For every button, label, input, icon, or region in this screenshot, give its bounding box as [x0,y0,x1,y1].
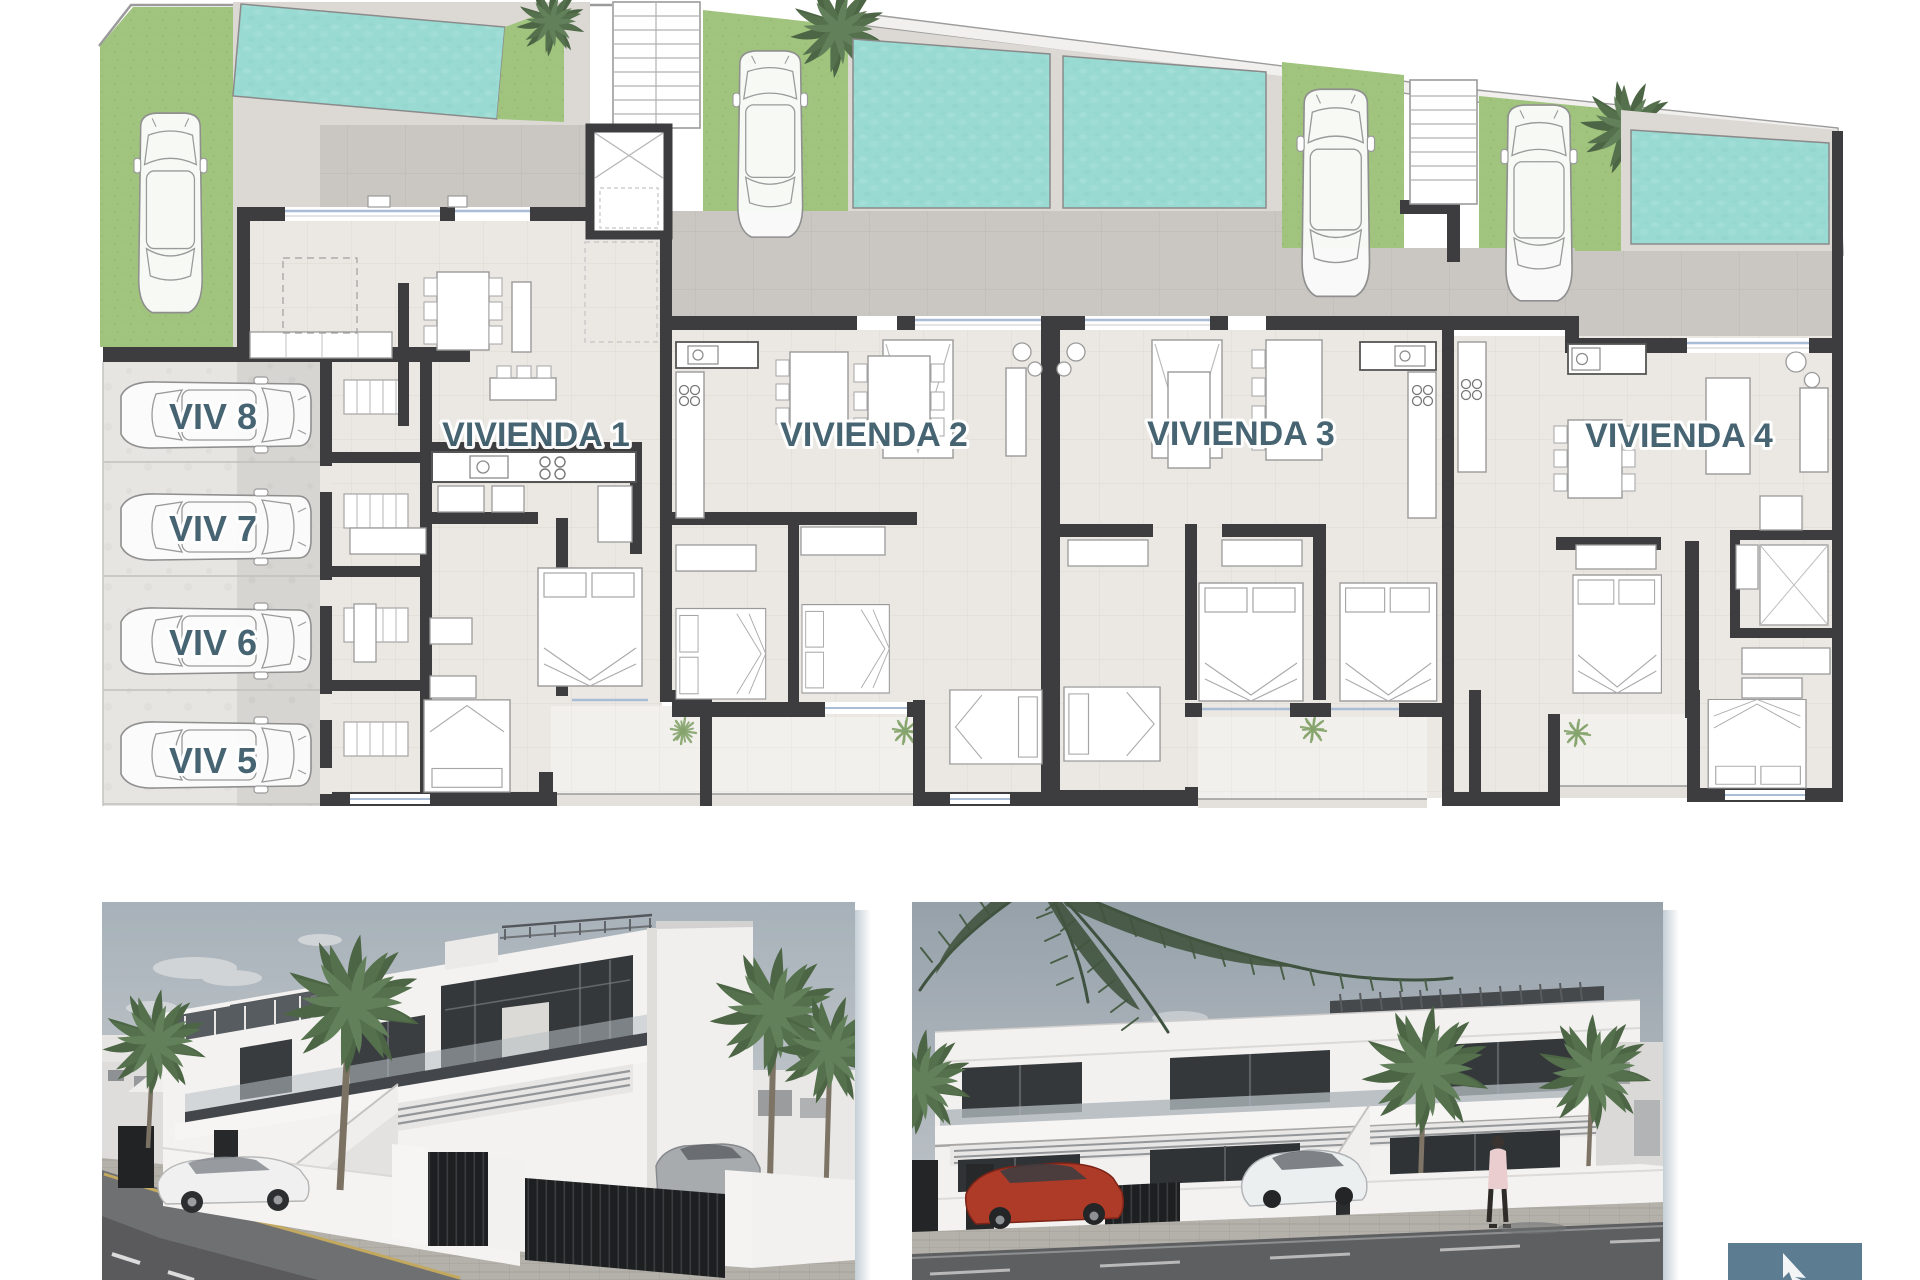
svg-text:VIVIENDA 2: VIVIENDA 2 [780,416,968,454]
svg-text:VIV 5: VIV 5 [169,740,257,781]
svg-text:VIV 6: VIV 6 [169,622,257,663]
svg-text:VIVIENDA 3: VIVIENDA 3 [1147,415,1335,453]
svg-text:VIVIENDA 1: VIVIENDA 1 [442,416,630,454]
svg-text:VIV 7: VIV 7 [169,508,257,549]
svg-text:VIV 8: VIV 8 [169,396,257,437]
svg-text:VIVIENDA 4: VIVIENDA 4 [1585,417,1773,455]
